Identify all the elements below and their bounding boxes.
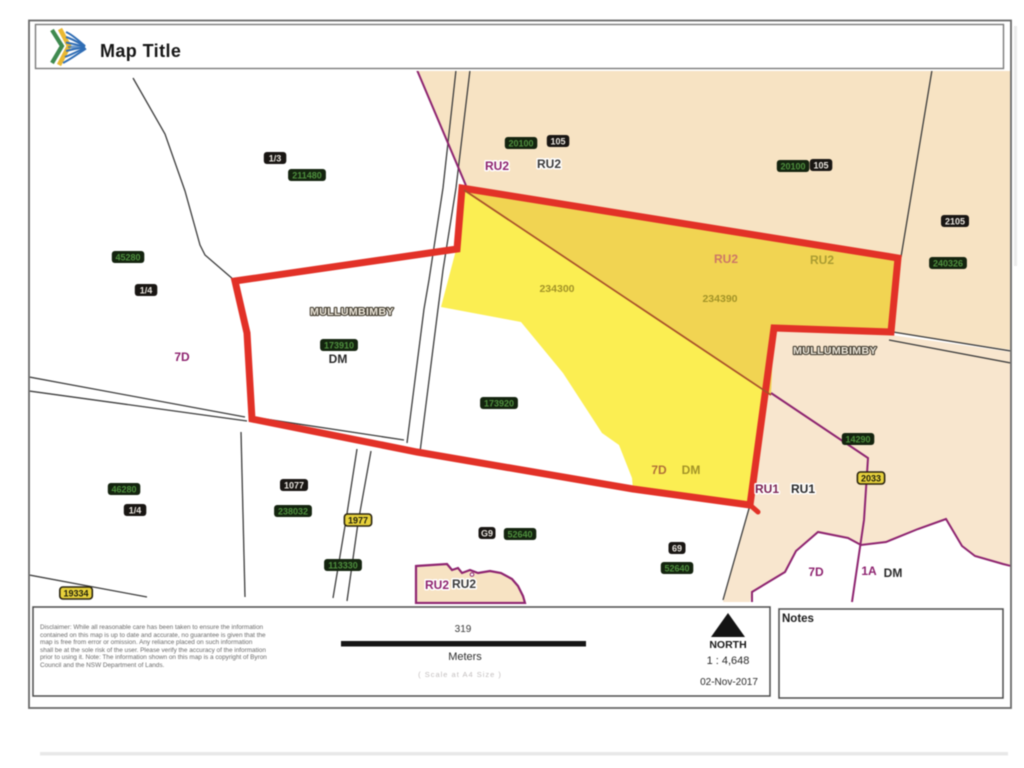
svg-text:RU2: RU2 [537,157,561,171]
svg-text:52640: 52640 [664,564,689,574]
svg-text:234300: 234300 [539,283,574,295]
svg-text:map is free from error or omis: map is free from error or omission. Any … [40,639,253,646]
svg-text:MULLUMBIMBY: MULLUMBIMBY [793,345,877,357]
svg-text:NORTH: NORTH [709,639,746,651]
svg-text:14290: 14290 [845,435,870,445]
svg-text:RU2: RU2 [452,577,476,591]
svg-text:46280: 46280 [111,485,136,495]
svg-text:1/4: 1/4 [140,286,153,296]
svg-text:1A: 1A [861,564,877,578]
svg-text:234390: 234390 [702,293,737,305]
svg-text:1 : 4,648: 1 : 4,648 [707,655,750,667]
svg-text:19334: 19334 [63,589,88,599]
svg-text:238032: 238032 [278,507,308,517]
svg-text:Notes: Notes [782,613,814,625]
svg-text:113330: 113330 [328,561,358,571]
svg-text:RU2: RU2 [425,578,449,592]
svg-text:1/3: 1/3 [269,154,282,164]
svg-text:contained on this map is up to: contained on this map is up to date and … [40,632,266,639]
svg-text:RU2: RU2 [810,253,834,267]
svg-text:Council and the NSW Department: Council and the NSW Department of Lands. [40,662,165,669]
svg-text:( Scale at A4 Size ): ( Scale at A4 Size ) [418,670,502,679]
svg-text:RU1: RU1 [791,482,815,496]
svg-text:240326: 240326 [933,259,963,269]
svg-text:7D: 7D [651,463,667,477]
svg-text:69: 69 [672,544,682,554]
svg-text:prior to using it. Note: The i: prior to using it. Note: The information… [40,654,267,661]
svg-text:105: 105 [550,137,565,147]
svg-text:7D: 7D [174,350,190,364]
svg-text:shall be at the sole risk of t: shall be at the sole risk of the user. P… [40,647,266,654]
svg-text:173910: 173910 [324,341,354,351]
svg-text:RU1: RU1 [755,482,779,496]
svg-text:DM: DM [884,566,903,580]
svg-text:20100: 20100 [508,139,533,149]
svg-text:2033: 2033 [861,474,881,484]
svg-text:DM: DM [682,463,701,477]
svg-text:105: 105 [813,161,828,171]
svg-text:RU2: RU2 [714,252,738,266]
svg-text:319: 319 [455,624,472,635]
svg-text:7D: 7D [808,565,824,579]
svg-text:G9: G9 [481,529,493,539]
svg-text:1977: 1977 [348,516,368,526]
svg-text:RU2: RU2 [485,159,509,173]
svg-text:Disclaimer: While all reasonab: Disclaimer: While all reasonable care ha… [40,624,264,631]
svg-text:211480: 211480 [292,171,322,181]
svg-text:Map Title: Map Title [100,41,181,61]
svg-text:1077: 1077 [284,481,304,491]
svg-text:DM: DM [329,352,348,366]
svg-text:1/4: 1/4 [129,506,142,516]
svg-text:02-Nov-2017: 02-Nov-2017 [700,677,758,688]
svg-text:20100: 20100 [780,162,805,172]
svg-text:MULLUMBIMBY: MULLUMBIMBY [310,306,394,318]
svg-text:2105: 2105 [945,217,965,227]
svg-text:52640: 52640 [507,530,532,540]
svg-text:Meters: Meters [448,651,482,663]
svg-text:45280: 45280 [115,253,140,263]
svg-text:173920: 173920 [484,399,514,409]
